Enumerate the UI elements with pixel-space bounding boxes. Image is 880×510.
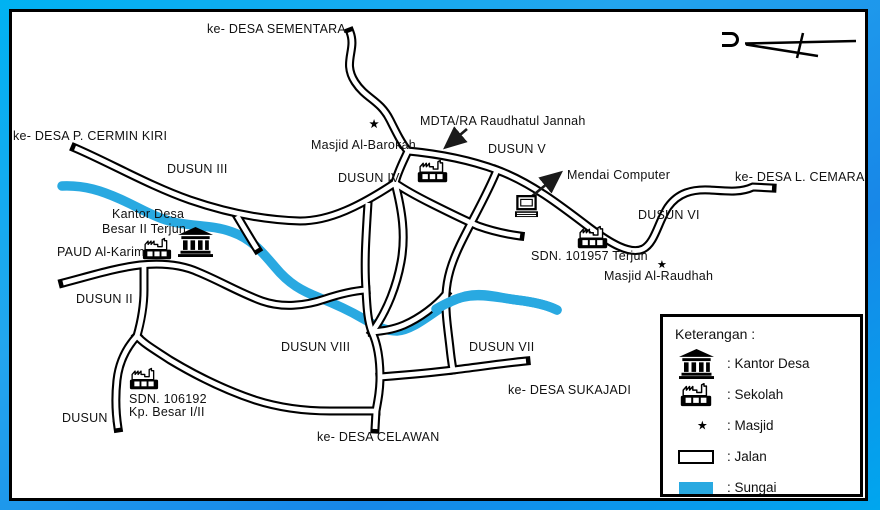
jalan-legend-label: : Jalan: [727, 449, 767, 464]
kantor-desa-legend-icon: [673, 349, 719, 379]
legend-rows: : Kantor Desa: Sekolah: Masjid: Jalan: S…: [673, 348, 850, 503]
sekolah-legend-label: : Sekolah: [727, 387, 783, 402]
legend-item-masjid: : Masjid: [673, 410, 850, 441]
masjid-legend-label: : Masjid: [727, 418, 774, 433]
kantor-desa-legend-label: : Kantor Desa: [727, 356, 810, 371]
sungai-legend-icon: [673, 482, 719, 494]
sungai-legend-label: : Sungai: [727, 480, 777, 495]
sekolah-legend-icon: [673, 382, 719, 407]
legend-item-jalan: : Jalan: [673, 441, 850, 472]
legend-item-sungai: : Sungai: [673, 472, 850, 503]
legend-item-kantor-desa: : Kantor Desa: [673, 348, 850, 379]
masjid-legend-icon: [673, 412, 719, 439]
mendai-computer-icon: [515, 196, 538, 217]
legend-item-sekolah: : Sekolah: [673, 379, 850, 410]
jalan-legend-icon: [673, 450, 719, 464]
legend-box: Keterangan : : Kantor Desa: Sekolah: Mas…: [660, 314, 863, 497]
legend-title: Keterangan :: [675, 326, 850, 342]
